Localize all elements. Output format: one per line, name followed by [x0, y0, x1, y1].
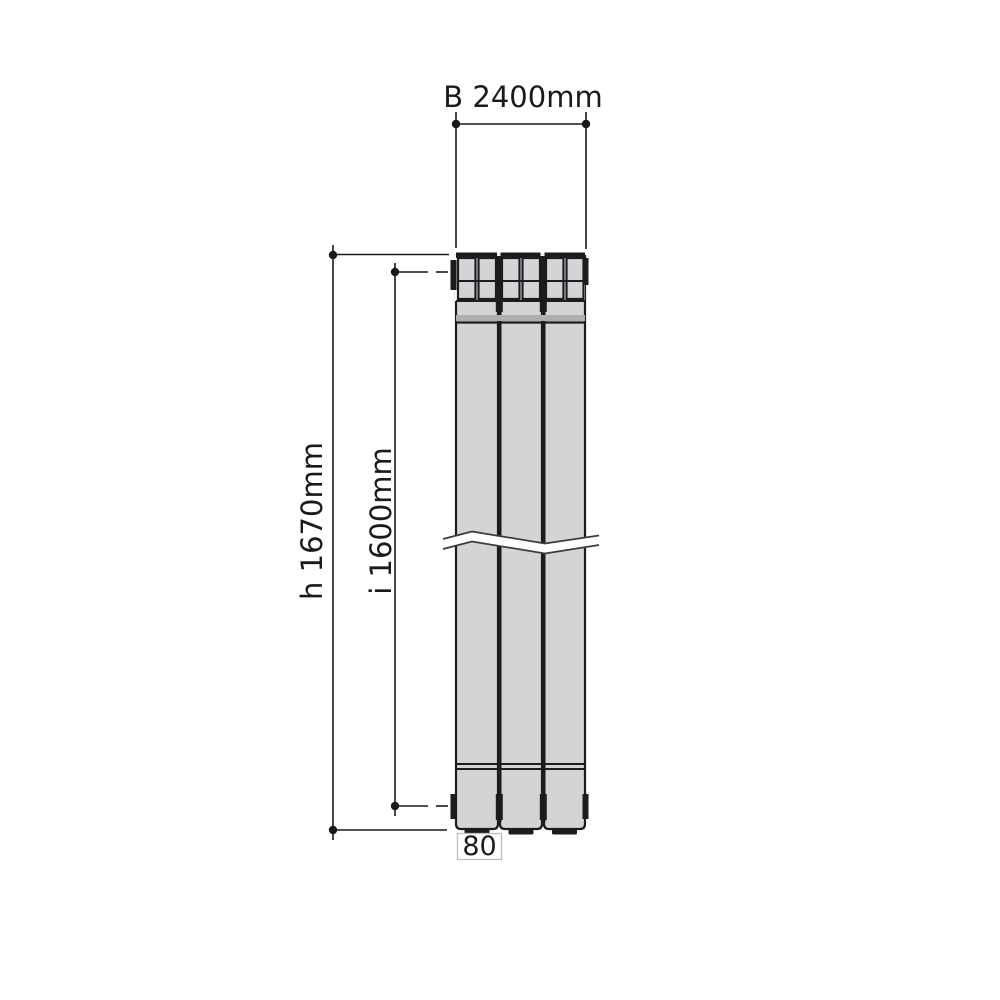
header-shade-strip — [456, 315, 585, 321]
top-cap — [456, 253, 497, 259]
width-dimension-label: B 2400mm — [443, 80, 602, 114]
section-width-label: 80 — [458, 831, 502, 862]
side-plug-top-right — [583, 258, 589, 285]
fin — [479, 258, 497, 299]
fin — [546, 258, 564, 299]
foot — [509, 830, 534, 835]
inner-height-dimension-label: i 1600mm — [364, 447, 398, 595]
dimension-dot — [582, 120, 590, 128]
side-plug-bottom-right — [583, 794, 589, 819]
fin — [502, 258, 520, 299]
dimension-height-i: i 1600mm — [364, 263, 448, 816]
separator-nub — [496, 794, 503, 820]
top-cap — [545, 253, 586, 259]
side-plug-bottom-left — [451, 794, 457, 819]
fin — [523, 258, 541, 299]
fin — [567, 258, 584, 299]
top-cap — [501, 253, 541, 259]
foot — [552, 830, 577, 835]
section-width-value: 80 — [462, 831, 496, 862]
separator-nub — [540, 794, 547, 820]
height-dimension-label: h 1670mm — [295, 442, 329, 600]
side-plug-top-left — [451, 260, 457, 290]
dimension-dot — [452, 120, 460, 128]
fin — [458, 258, 476, 299]
technical-drawing-page: B 2400mm h 1670mm i 1600mm 80 — [0, 0, 1000, 1000]
dimension-width: B 2400mm — [443, 80, 602, 249]
section-separator — [541, 256, 546, 822]
separator-nub — [496, 256, 503, 312]
radiator-dimension-drawing: B 2400mm h 1670mm i 1600mm 80 — [0, 0, 1000, 1000]
separator-nub — [540, 256, 547, 312]
